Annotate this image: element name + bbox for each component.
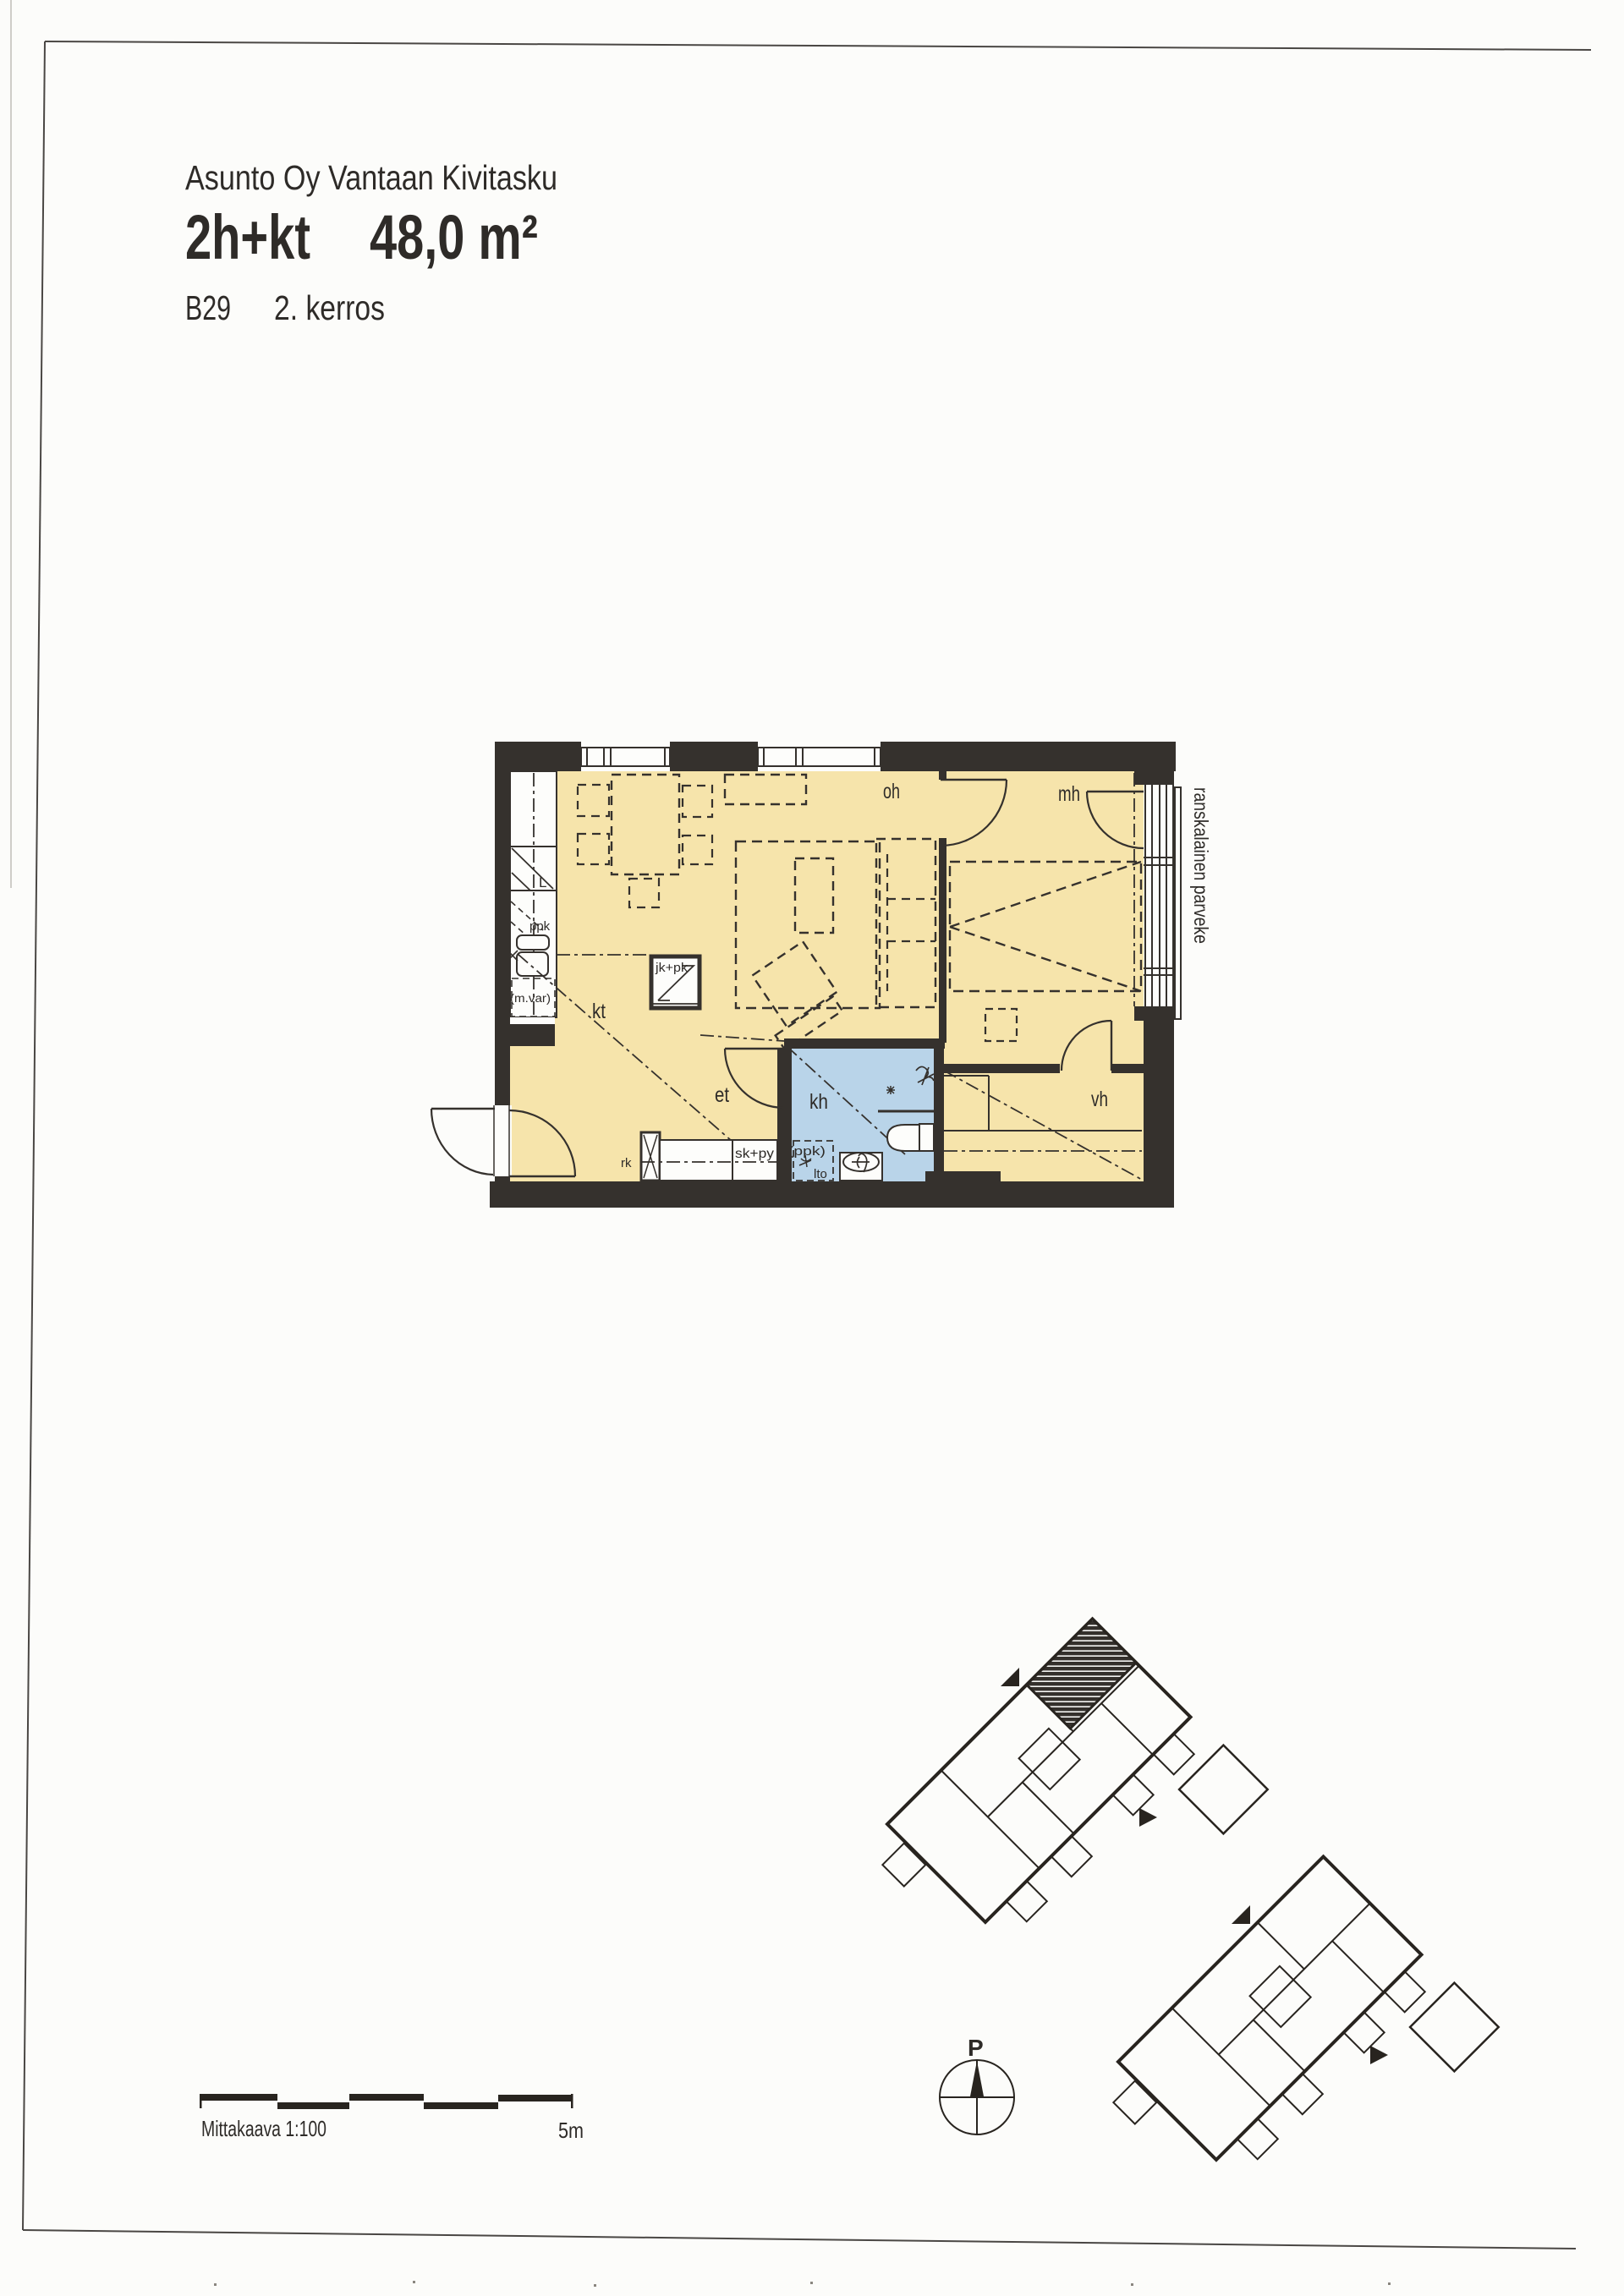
svg-text:L: L xyxy=(539,874,546,890)
svg-text:rk: rk xyxy=(621,1156,632,1170)
svg-text:Mittakaava 1:100: Mittakaava 1:100 xyxy=(201,2116,326,2141)
svg-text:48,0 m²: 48,0 m² xyxy=(370,202,538,272)
svg-text:jk+pk: jk+pk xyxy=(655,961,689,975)
svg-text:kh: kh xyxy=(809,1090,828,1114)
svg-text:(ppk): (ppk) xyxy=(788,1144,826,1159)
svg-text:2h+kt: 2h+kt xyxy=(185,202,310,272)
svg-text:vh: vh xyxy=(1091,1088,1108,1111)
svg-text:B29: B29 xyxy=(185,288,231,327)
svg-text:et: et xyxy=(715,1083,729,1107)
svg-text:mh: mh xyxy=(1058,782,1080,806)
svg-text:(m.var): (m.var) xyxy=(510,992,551,1005)
svg-text:P: P xyxy=(968,2035,984,2061)
svg-text:lto: lto xyxy=(814,1167,827,1181)
svg-text:kt: kt xyxy=(592,1000,606,1023)
svg-text:oh: oh xyxy=(883,780,900,803)
svg-text:sk+py: sk+py xyxy=(735,1147,774,1161)
svg-text:2. kerros: 2. kerros xyxy=(274,288,385,327)
svg-text:5m: 5m xyxy=(558,2118,584,2143)
svg-text:ppk: ppk xyxy=(529,919,551,934)
svg-text:Asunto Oy Vantaan Kivitasku: Asunto Oy Vantaan Kivitasku xyxy=(185,158,557,197)
svg-text:ranskalainen parveke: ranskalainen parveke xyxy=(1190,787,1212,944)
